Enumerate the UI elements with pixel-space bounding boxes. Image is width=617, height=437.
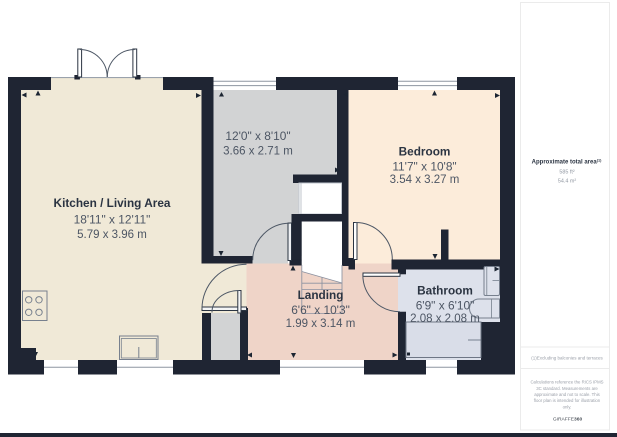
svg-text:Bedroom: Bedroom — [399, 145, 451, 159]
svg-text:5.79 x 3.96 m: 5.79 x 3.96 m — [77, 229, 147, 241]
svg-text:2.08 x 2.08 m: 2.08 x 2.08 m — [410, 313, 480, 325]
svg-text:Bathroom: Bathroom — [417, 284, 473, 298]
svg-text:Kitchen / Living Area: Kitchen / Living Area — [54, 196, 171, 210]
svg-text:585 ft²: 585 ft² — [559, 169, 574, 175]
svg-text:(1)Excluding balconies and ter: (1)Excluding balconies and terraces — [531, 356, 603, 361]
svg-text:6'6" x 10'3": 6'6" x 10'3" — [291, 303, 350, 317]
svg-text:Approximate total area(1): Approximate total area(1) — [532, 158, 602, 165]
svg-text:3.66 x 2.71 m: 3.66 x 2.71 m — [223, 146, 293, 158]
svg-text:1.99 x 3.14 m: 1.99 x 3.14 m — [286, 318, 356, 330]
svg-text:54.4 m²: 54.4 m² — [558, 178, 576, 184]
svg-text:floor plan is intended for ill: floor plan is intended for illustration — [534, 398, 601, 403]
svg-text:6'9" x 6'10": 6'9" x 6'10" — [416, 299, 475, 313]
svg-text:Calculations reference the RIC: Calculations reference the RICS IPMS — [530, 380, 603, 385]
svg-text:Landing: Landing — [298, 288, 344, 302]
svg-text:approximate and not to scale.: approximate and not to scale. This — [534, 392, 600, 397]
svg-text:3.54 x 3.27 m: 3.54 x 3.27 m — [390, 174, 460, 186]
svg-text:3C standard. Measurements are: 3C standard. Measurements are — [536, 386, 598, 391]
svg-text:18'11" x 12'11": 18'11" x 12'11" — [74, 213, 151, 227]
svg-text:11'7" x 10'8": 11'7" x 10'8" — [392, 160, 456, 174]
svg-text:only.: only. — [563, 404, 572, 409]
svg-text:12'0" x 8'10": 12'0" x 8'10" — [225, 129, 290, 143]
svg-text:GIRAFFE360: GIRAFFE360 — [553, 416, 583, 422]
